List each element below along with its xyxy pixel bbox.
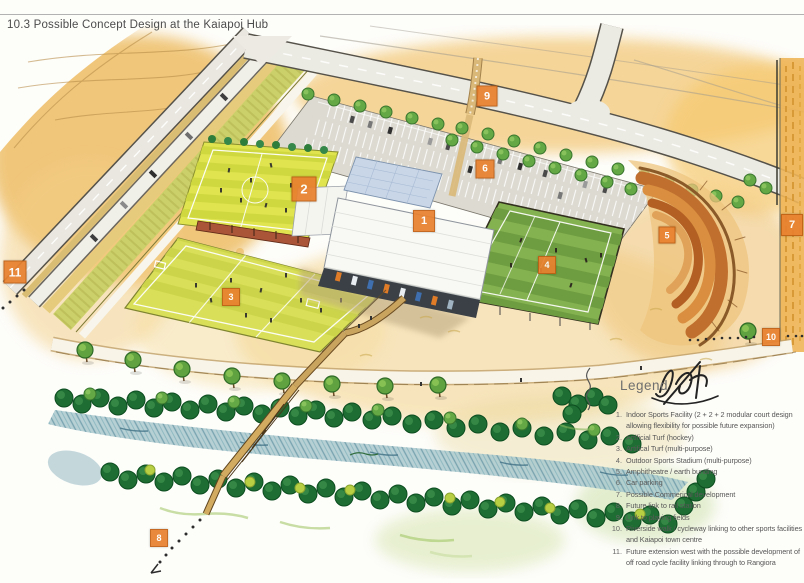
legend-item-11: 11.Future extension west with the possib… xyxy=(596,546,804,569)
marker-2: 2 xyxy=(292,177,317,202)
marker-5: 5 xyxy=(659,227,676,244)
legend-item-number: 6. xyxy=(596,477,622,488)
marker-6: 6 xyxy=(476,160,495,179)
legend-heading: Legend xyxy=(620,378,804,393)
legend-item-number: 10. xyxy=(596,523,622,546)
legend-item-text: Riverside walk / cycleway linking to oth… xyxy=(626,523,804,546)
legend-item-3: 3.Artifical Turf (multi-purpose) xyxy=(596,443,804,454)
legend-item-number: 3. xyxy=(596,443,622,454)
header-rule xyxy=(0,14,804,15)
legend-item-text: Car parking xyxy=(626,477,804,488)
legend-item-number: 4. xyxy=(596,455,622,466)
commercial-strip xyxy=(777,58,804,352)
legend-item-4: 4.Outdoor Sports Stadium (multi-purpose) xyxy=(596,455,804,466)
legend-item-text: Future link to rail station xyxy=(626,500,804,511)
marker-4: 4 xyxy=(538,256,556,274)
legend-item-text: Outdoor Sports Stadium (multi-purpose) xyxy=(626,455,804,466)
legend-item-number: 2. xyxy=(596,432,622,443)
legend-item-8: 8.Future link to rail station xyxy=(596,500,804,511)
legend-item-9: 9.Link to playing fields xyxy=(596,512,804,523)
legend-items: 1.Indoor Sports Facility (2 + 2 + 2 modu… xyxy=(596,409,804,569)
legend-item-1: 1.Indoor Sports Facility (2 + 2 + 2 modu… xyxy=(596,409,804,432)
marker-10: 10 xyxy=(762,328,780,346)
legend-item-text: Link to playing fields xyxy=(626,512,804,523)
legend-item-2: 2.Artificial Turf (hockey) xyxy=(596,432,804,443)
legend-item-text: Future extension west with the possible … xyxy=(626,546,804,569)
legend-item-number: 8. xyxy=(596,500,622,511)
legend-item-6: 6.Car parking xyxy=(596,477,804,488)
legend-item-text: Possible Commerical development xyxy=(626,489,804,500)
legend-item-text: Amphitheatre / earth bunding xyxy=(626,466,804,477)
legend-item-number: 1. xyxy=(596,409,622,432)
legend-item-number: 9. xyxy=(596,512,622,523)
marker-7: 7 xyxy=(781,214,803,236)
legend-item-text: Artificial Turf (hockey) xyxy=(626,432,804,443)
legend-item-number: 11. xyxy=(596,546,622,569)
marker-1: 1 xyxy=(413,210,435,232)
legend-item-text: Artifical Turf (multi-purpose) xyxy=(626,443,804,454)
marker-3: 3 xyxy=(222,288,240,306)
legend: Legend 1.Indoor Sports Facility (2 + 2 +… xyxy=(596,378,804,569)
legend-item-number: 5. xyxy=(596,466,622,477)
legend-item-number: 7. xyxy=(596,489,622,500)
legend-item-text: Indoor Sports Facility (2 + 2 + 2 modula… xyxy=(626,409,804,432)
legend-item-5: 5.Amphitheatre / earth bunding xyxy=(596,466,804,477)
marker-11: 11 xyxy=(4,261,27,284)
page-title: 10.3 Possible Concept Design at the Kaia… xyxy=(7,19,268,31)
legend-item-10: 10.Riverside walk / cycleway linking to … xyxy=(596,523,804,546)
marker-8: 8 xyxy=(150,529,168,547)
marker-9: 9 xyxy=(477,86,498,107)
legend-item-7: 7.Possible Commerical development xyxy=(596,489,804,500)
